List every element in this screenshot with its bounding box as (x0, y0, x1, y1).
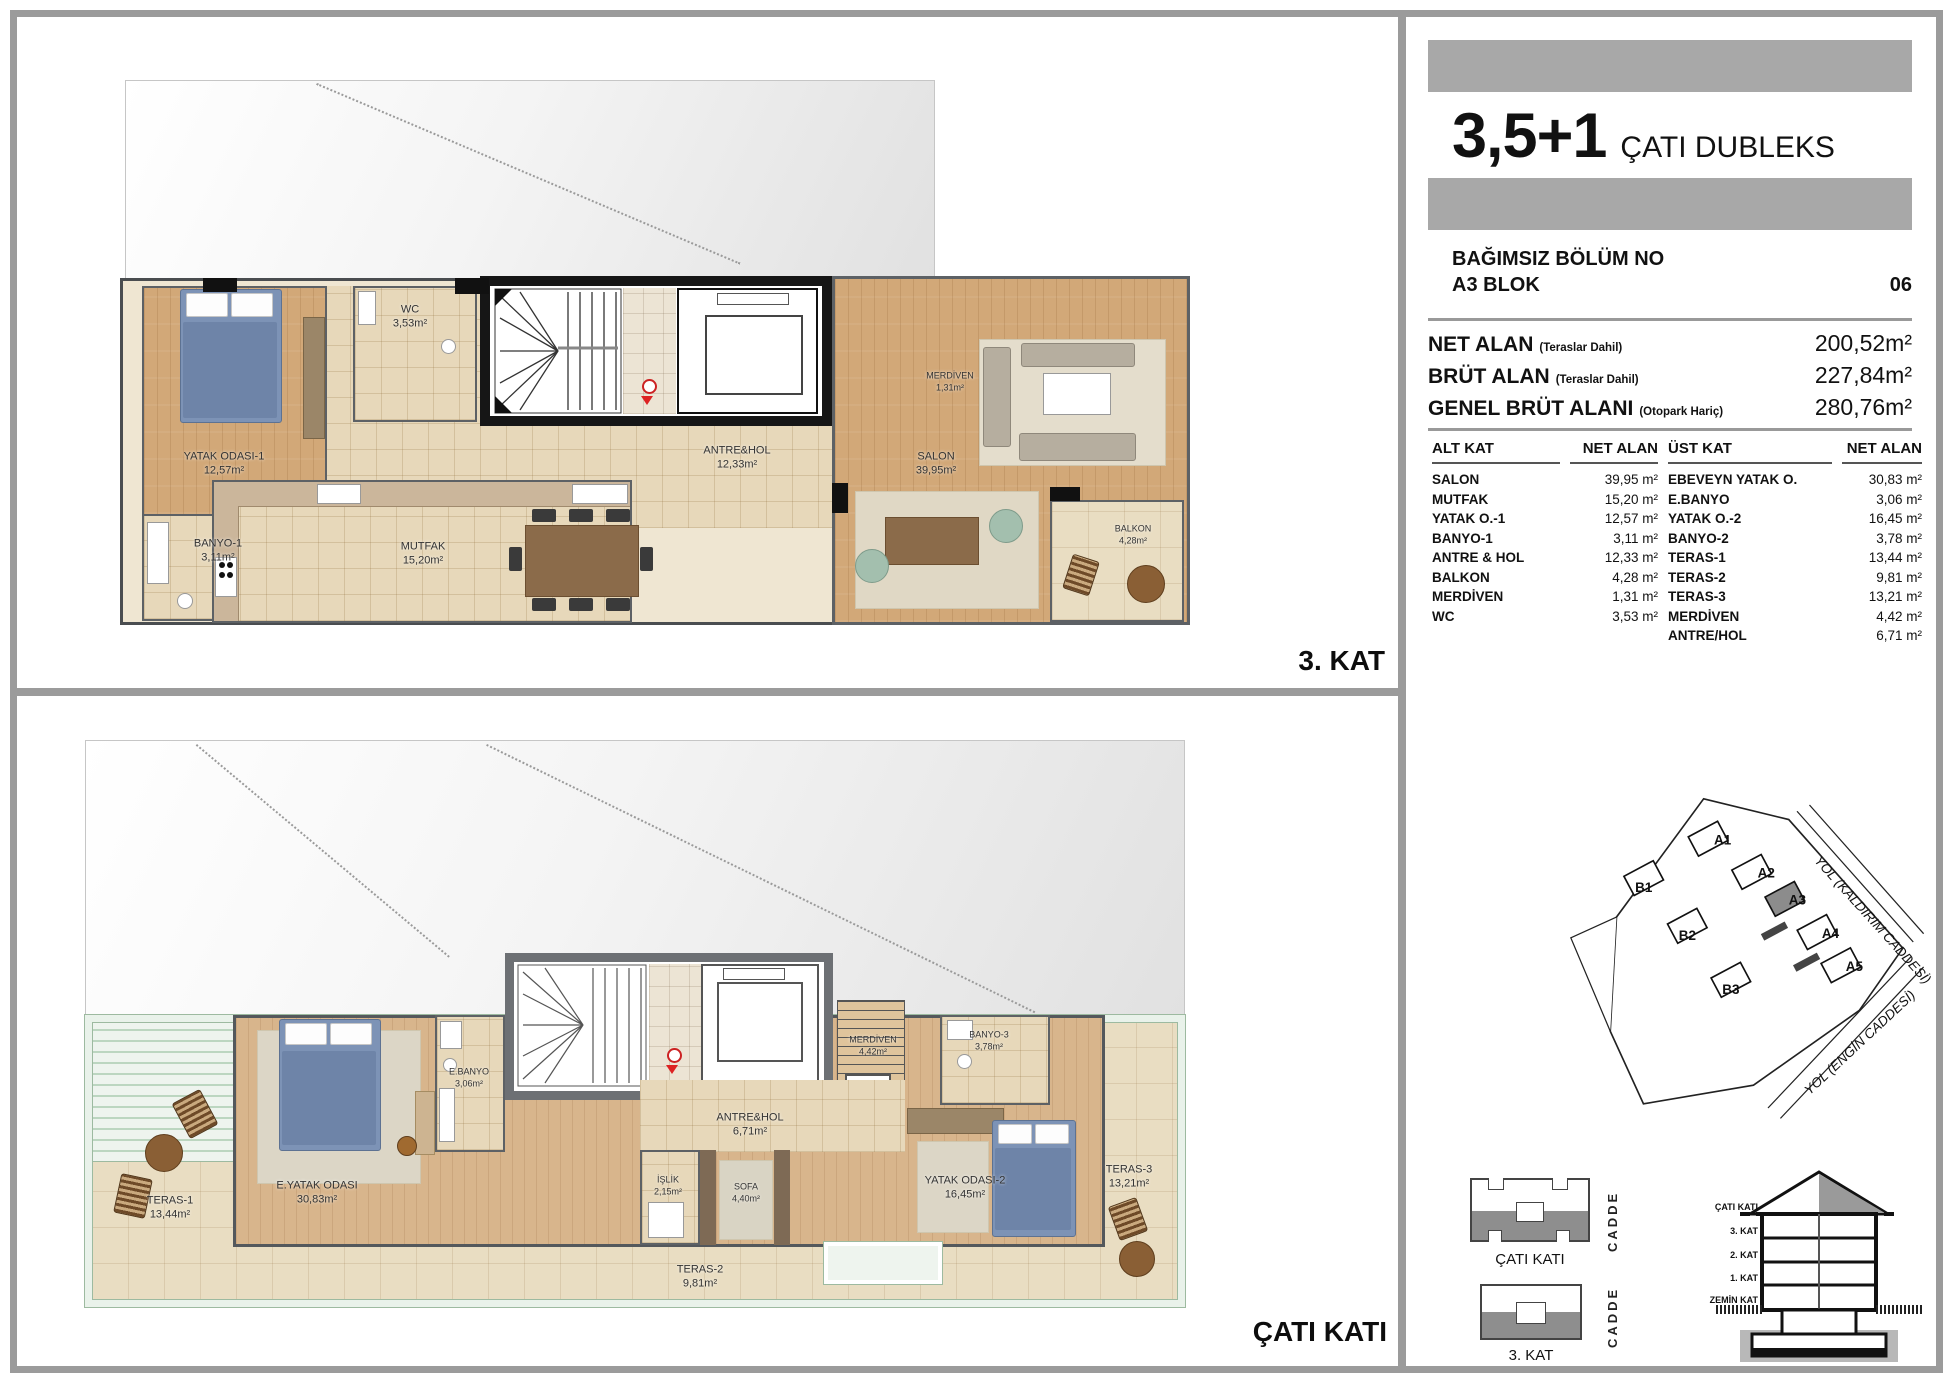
table-cell: 12,57 m² (1570, 509, 1658, 529)
block-label: A2 (1758, 866, 1775, 881)
sofa (1021, 343, 1135, 367)
section-floor-label: ZEMİN KAT (1710, 1295, 1759, 1305)
table-cell: TERAS-1 (1668, 548, 1832, 568)
unit-title: 3,5+1 ÇATI DUBLEKS (1452, 100, 1835, 172)
keyplan-notch (1488, 1230, 1502, 1242)
basement-stem (1782, 1310, 1856, 1334)
table-header: NET ALAN (1842, 436, 1922, 464)
room-area: 3,53m² (393, 317, 427, 331)
table-cell: TERAS-3 (1668, 587, 1832, 607)
roof-area (125, 80, 935, 285)
section-no-label: BAĞIMSIZ BÖLÜM NO (1452, 246, 1664, 273)
plan-panel-cati: TERAS-113,44m² E.YATAK ODASI30,83m² E.BA… (17, 696, 1398, 1366)
exit-arrow-icon (641, 396, 653, 411)
room-name: YATAK ODASI-1 (184, 450, 265, 464)
bathtub (147, 522, 169, 584)
bed-pillow (1035, 1124, 1069, 1144)
room-area: 2,15m² (654, 1186, 682, 1198)
room-area: 13,44m² (147, 1208, 193, 1222)
room-area: 39,95m² (916, 464, 956, 478)
room-area: 3,78m² (969, 1041, 1009, 1053)
block-label: A4 (1822, 926, 1840, 941)
kitchen-sink (317, 484, 361, 504)
room-label: E.YATAK ODASI30,83m² (276, 1179, 357, 1208)
room-label: ANTRE&HOL6,71m² (716, 1111, 783, 1140)
room-area: 3,11m² (194, 551, 242, 565)
room-label: ANTRE&HOL12,33m² (703, 444, 770, 473)
rule (1428, 318, 1912, 321)
table-cell: 9,81 m² (1842, 568, 1922, 588)
block-row: A3 BLOK 06 (1452, 272, 1912, 299)
table-cell: E.BANYO (1668, 490, 1832, 510)
section-floor-label: 2. KAT (1730, 1250, 1758, 1260)
floor-tag-3kat: 3. KAT (1267, 647, 1385, 675)
header-bar-bottom (1428, 178, 1912, 230)
ground-hatch (1876, 1305, 1924, 1314)
room-label: SOFA4,40m² (732, 1181, 760, 1204)
area-value: 227,84m² (1815, 362, 1912, 389)
section-floor-label: 1. KAT (1730, 1273, 1758, 1283)
keyplan-notch (1488, 1178, 1504, 1190)
dining-chair (606, 598, 630, 611)
stove-burner (227, 572, 233, 578)
armchair (989, 509, 1023, 543)
table-cell: MUTFAK (1432, 490, 1560, 510)
general-gross-area-row: GENEL BRÜT ALANI (Otopark Hariç) 280,76m… (1428, 394, 1912, 421)
table-cell: 16,45 m² (1842, 509, 1922, 529)
desk (415, 1091, 435, 1155)
table-header: NET ALAN (1570, 436, 1658, 464)
table-cell: BANYO-1 (1432, 529, 1560, 549)
area-label: GENEL BRÜT ALANI (1428, 397, 1633, 421)
table-cell: 39,95 m² (1570, 470, 1658, 490)
parcel-point (1571, 917, 1617, 1031)
table-cell: 4,42 m² (1842, 607, 1922, 627)
wardrobe (700, 1150, 716, 1245)
bed-blanket (995, 1148, 1071, 1230)
table-cell: 12,33 m² (1570, 548, 1658, 568)
dining-chair (606, 509, 630, 522)
bed-pillow (285, 1023, 327, 1045)
table-cell: 3,78 m² (1842, 529, 1922, 549)
area-value: 280,76m² (1815, 394, 1912, 421)
table-cell: BANYO-2 (1668, 529, 1832, 549)
wardrobe (774, 1150, 790, 1245)
room-label: TERAS-29,81m² (677, 1263, 723, 1292)
dining-chair (532, 598, 556, 611)
room-name: TERAS-3 (1106, 1163, 1152, 1177)
section-floor-label: ÇATI KATI (1715, 1202, 1758, 1212)
panel-divider-vertical (1398, 17, 1406, 1366)
table-cell: MERDİVEN (1432, 587, 1560, 607)
sofa (983, 347, 1011, 447)
area-value: 200,52m² (1815, 330, 1912, 357)
room-area: 3,06m² (449, 1078, 489, 1090)
elevator-door (717, 293, 789, 305)
dining-chair (640, 547, 653, 571)
room-area: 4,42m² (849, 1046, 897, 1058)
room-area: 9,81m² (677, 1277, 723, 1291)
bed-blanket (282, 1051, 376, 1145)
column (1050, 487, 1080, 501)
keyplan-unit (1516, 1302, 1546, 1324)
room-label: MUTFAK15,20m² (401, 540, 446, 569)
bathtub (439, 1088, 455, 1142)
table-cell: 3,53 m² (1570, 607, 1658, 627)
room-name: TERAS-2 (677, 1263, 723, 1277)
room-name: WC (393, 303, 427, 317)
spiral-stair (517, 964, 647, 1087)
ground-hatch (1714, 1305, 1762, 1314)
desk-chair (397, 1136, 417, 1156)
table-cell: 15,20 m² (1570, 490, 1658, 510)
table-cell: ANTRE/HOL (1668, 626, 1832, 646)
dining-chair (569, 509, 593, 522)
room-area-table: ALT KAT NET ALAN ÜST KAT NET ALAN SALON … (1432, 436, 1922, 646)
room-name: SOFA (732, 1181, 760, 1193)
block-label: B2 (1679, 928, 1696, 943)
room-name: YATAK ODASI-2 (925, 1174, 1006, 1188)
table-cell: WC (1432, 607, 1560, 627)
room-name: ANTRE&HOL (716, 1111, 783, 1125)
room-name: TERAS-1 (147, 1194, 193, 1208)
area-note: (Otopark Hariç) (1639, 406, 1723, 418)
dining-chair (569, 598, 593, 611)
table-cell: TERAS-2 (1668, 568, 1832, 588)
room-area: 1,31m² (926, 382, 974, 394)
room-name: ANTRE&HOL (703, 444, 770, 458)
table-cell: EBEVEYN YATAK O. (1668, 470, 1832, 490)
coffee-table (1043, 373, 1111, 415)
skylight (823, 1241, 943, 1285)
keyplan-3kat-label: 3. KAT (1472, 1348, 1590, 1363)
room-label: YATAK ODASI-112,57m² (184, 450, 265, 479)
exit-arrow-icon (666, 1065, 678, 1080)
elevator-door (723, 968, 785, 980)
block-label: A5 (1846, 959, 1864, 974)
room-area: 30,83m² (276, 1193, 357, 1207)
section-floor-label: 3. KAT (1730, 1226, 1758, 1236)
room-name: BALKON (1115, 523, 1152, 535)
header-bar-top (1428, 40, 1912, 92)
gross-area-row: BRÜT ALAN (Teraslar Dahil) 227,84m² (1428, 362, 1912, 389)
room-label: SALON39,95m² (916, 450, 956, 479)
room-label: TERAS-313,21m² (1106, 1163, 1152, 1192)
keyplan-unit (1516, 1202, 1544, 1222)
exit-marker-icon (667, 1048, 682, 1063)
table-cell: 30,83 m² (1842, 470, 1922, 490)
table-cell: 13,44 m² (1842, 548, 1922, 568)
bed-blanket (183, 322, 277, 418)
keyplan-3kat (1480, 1284, 1582, 1340)
table-cell: YATAK O.-1 (1432, 509, 1560, 529)
keyplan-notch (1552, 1178, 1568, 1190)
room-label: MERDİVEN4,42m² (849, 1034, 897, 1057)
table-cell: 13,21 m² (1842, 587, 1922, 607)
table-cell: 6,71 m² (1842, 626, 1922, 646)
room-area: 13,21m² (1106, 1177, 1152, 1191)
dining-chair (532, 509, 556, 522)
room-label: MERDİVEN1,31m² (926, 370, 974, 393)
stove-burner (219, 572, 225, 578)
table-cell: YATAK O.-2 (1668, 509, 1832, 529)
floor-tag-cati: ÇATI KATI (1167, 1318, 1387, 1346)
balcony-table (1127, 565, 1165, 603)
room-label: BALKON4,28m² (1115, 523, 1152, 546)
block-name: A3 BLOK (1452, 272, 1540, 299)
table-cell: BALKON (1432, 568, 1560, 588)
bed-pillow (998, 1124, 1032, 1144)
footing-base (1752, 1348, 1886, 1356)
block-label: A3 (1789, 893, 1806, 908)
block-label: B1 (1635, 880, 1653, 895)
table-cell: 4,28 m² (1570, 568, 1658, 588)
column (203, 278, 237, 292)
plan-panel-3kat: YATAK ODASI-112,57m² BANYO-13,11m² WC3,5… (17, 17, 1398, 688)
exit-marker-icon (642, 379, 657, 394)
room-area: 12,33m² (703, 458, 770, 472)
room-name: SALON (916, 450, 956, 464)
table-cell: 3,06 m² (1842, 490, 1922, 510)
area-note: (Teraslar Dahil) (1556, 374, 1639, 386)
room-label: İŞLİK2,15m² (654, 1174, 682, 1197)
dining-chair (509, 547, 522, 571)
room-name: E.YATAK ODASI (276, 1179, 357, 1193)
room-area: 6,71m² (716, 1125, 783, 1139)
block-label: A1 (1714, 832, 1732, 847)
column (832, 483, 848, 513)
unit-number: 06 (1890, 272, 1912, 299)
washbasin (440, 1021, 462, 1049)
low-table (885, 517, 979, 565)
room-area: 16,45m² (925, 1188, 1006, 1202)
armchair (855, 549, 889, 583)
room-name: MERDİVEN (926, 370, 974, 382)
keyplan-cati-label: ÇATI KATI (1462, 1252, 1598, 1267)
street-label-vertical: CADDE (1606, 1284, 1619, 1348)
room-name: İŞLİK (654, 1174, 682, 1186)
bed-pillow (186, 293, 228, 317)
room-label: WC3,53m² (393, 303, 427, 332)
street-label-vertical: CADDE (1606, 1180, 1619, 1252)
room-label: BANYO-13,11m² (194, 537, 242, 566)
floor-plan-sheet: YATAK ODASI-112,57m² BANYO-13,11m² WC3,5… (0, 0, 1953, 1383)
bed-pillow (330, 1023, 372, 1045)
room-label: YATAK ODASI-216,45m² (925, 1174, 1006, 1203)
elevator-car (705, 315, 803, 395)
area-label: NET ALAN (1428, 333, 1533, 357)
room-area: 12,57m² (184, 464, 265, 478)
terrace-table (145, 1134, 183, 1172)
room-area: 4,28m² (1115, 535, 1152, 547)
room-area: 4,40m² (732, 1193, 760, 1205)
room-name: BANYO-3 (969, 1029, 1009, 1041)
table-header: ÜST KAT (1668, 436, 1832, 464)
room-name: MERDİVEN (849, 1034, 897, 1046)
elevator-car (717, 982, 803, 1062)
unit-type-number: 3,5+1 (1452, 100, 1606, 172)
spiral-stair (494, 288, 622, 414)
column (455, 278, 489, 294)
keyplan-notch (1556, 1230, 1570, 1242)
room-area: 15,20m² (401, 554, 446, 568)
table-cell: 1,31 m² (1570, 587, 1658, 607)
terrace-table (1119, 1241, 1155, 1277)
kitchen-counter (214, 482, 630, 507)
site-plan: A1 A2 A3 A4 A5 B1 B2 B3 (1548, 792, 1934, 1148)
room-label: TERAS-113,44m² (147, 1194, 193, 1223)
table-cell: ANTRE & HOL (1432, 548, 1560, 568)
room-label: E.BANYO3,06m² (449, 1066, 489, 1089)
room-name: MUTFAK (401, 540, 446, 554)
rule (1428, 428, 1912, 431)
area-label: BRÜT ALAN (1428, 365, 1550, 389)
area-note: (Teraslar Dahil) (1539, 342, 1622, 354)
table-header: ALT KAT (1432, 436, 1560, 464)
toilet (441, 339, 456, 354)
parcel-outline (1610, 799, 1903, 1104)
net-area-row: NET ALAN (Teraslar Dahil) 200,52m² (1428, 330, 1912, 357)
dining-table (525, 525, 639, 597)
wardrobe (303, 317, 325, 439)
toilet (957, 1054, 972, 1069)
washbasin (358, 291, 376, 325)
table-cell: SALON (1432, 470, 1560, 490)
table-cell: 3,11 m² (1570, 529, 1658, 549)
room-label: BANYO-33,78m² (969, 1029, 1009, 1052)
bed-pillow (231, 293, 273, 317)
block-label: B3 (1722, 982, 1739, 997)
room-name: E.BANYO (449, 1066, 489, 1078)
room-name: BANYO-1 (194, 537, 242, 551)
panel-divider-horizontal (17, 688, 1398, 696)
unit-type-name: ÇATI DUBLEKS (1620, 131, 1835, 165)
washer (648, 1202, 684, 1238)
sofa (1019, 433, 1136, 461)
table-cell: MERDİVEN (1668, 607, 1832, 627)
kitchen-appliance (572, 484, 628, 504)
keyplan-cati (1470, 1178, 1590, 1242)
toilet (177, 593, 193, 609)
wardrobe (907, 1108, 1004, 1134)
building-section: ÇATI KATI 3. KAT 2. KAT 1. KAT ZEMİN KAT (1652, 1162, 1936, 1364)
